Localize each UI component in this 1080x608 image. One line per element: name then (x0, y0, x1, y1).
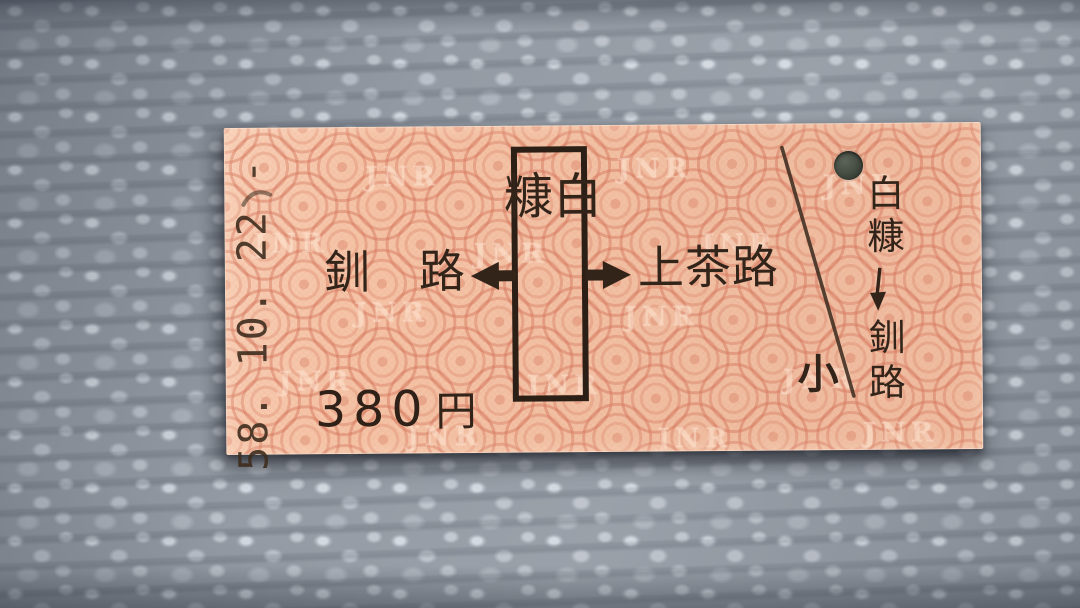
railway-ticket: JNR JNR JNR JNR JNR JNR JNR JNR JNR JNR … (224, 122, 984, 455)
jnr-watermark: JNR (624, 301, 699, 333)
child-fare-mark: 小 (797, 340, 838, 400)
route-note-from: 白糠 (859, 174, 902, 260)
down-arrow-icon (870, 268, 886, 311)
date-stamp: 58. 10. 22 - (229, 137, 278, 471)
issuing-station-name: 白糠 (500, 152, 600, 396)
jnr-watermark: JNR (617, 153, 692, 185)
punch-hole (834, 151, 863, 180)
left-station-name: 釧路 (324, 247, 514, 299)
photo-scene: JNR JNR JNR JNR JNR JNR JNR JNR JNR JNR … (0, 0, 1080, 608)
jnr-watermark: JNR (354, 297, 429, 329)
fare: 380 円 (315, 377, 477, 438)
fare-amount: 380 (315, 380, 430, 438)
fare-unit: 円 (435, 377, 476, 437)
issuing-station-box: 白糠 (511, 146, 589, 402)
jnr-watermark: JNR (657, 423, 732, 454)
right-station-name: 上茶路 (638, 243, 779, 295)
route-note-to: 釧路 (860, 318, 903, 408)
jnr-watermark: JNR (365, 161, 440, 193)
jnr-watermark: JNR (863, 417, 938, 449)
